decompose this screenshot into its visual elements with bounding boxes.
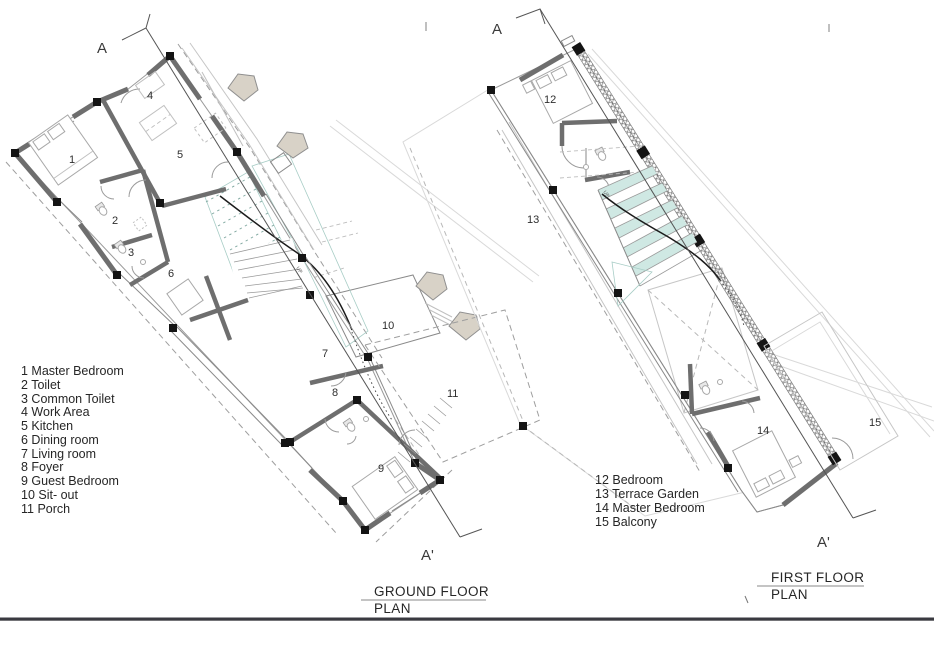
plan-title-line1: GROUND FLOOR bbox=[374, 584, 489, 599]
floor-plans-svg: UP bbox=[0, 0, 934, 657]
room-number-label: 10 bbox=[382, 320, 394, 332]
room-number-label: 7 bbox=[322, 348, 328, 360]
legend-item: 8 Foyer bbox=[21, 460, 63, 474]
legend-item: 14 Master Bedroom bbox=[595, 501, 705, 515]
room-number-label: 15 bbox=[869, 417, 881, 429]
legend-item: 13 Terrace Garden bbox=[595, 487, 699, 501]
room-number-label: 5 bbox=[177, 149, 183, 161]
legend-item: 5 Kitchen bbox=[21, 419, 73, 433]
first-plan-title: FIRST FLOOR PLAN bbox=[745, 570, 864, 603]
section-label-a: A bbox=[97, 40, 107, 57]
room-number-label: 6 bbox=[168, 268, 174, 280]
architectural-drawing-sheet: UP bbox=[0, 0, 934, 657]
room-number-label: 9 bbox=[378, 463, 384, 475]
plan-title-line2: PLAN bbox=[771, 587, 808, 602]
legend-item: 11 Porch bbox=[21, 502, 70, 516]
legend-item: 7 Living room bbox=[21, 447, 96, 461]
legend-item: 10 Sit- out bbox=[21, 488, 79, 502]
legend-item: 1 Master Bedroom bbox=[21, 364, 124, 378]
stray-mark bbox=[745, 596, 748, 603]
legend-item: 3 Common Toilet bbox=[21, 392, 115, 406]
sink-icon bbox=[141, 260, 146, 265]
sink-icon bbox=[718, 380, 723, 385]
room-number-label: 1 bbox=[69, 154, 75, 166]
section-label-a-prime: A' bbox=[421, 547, 434, 564]
ground-plan-title: GROUND FLOOR PLAN bbox=[361, 584, 489, 616]
first-floor-plan: UP A bbox=[403, 9, 934, 551]
legend-item: 2 Toilet bbox=[21, 378, 61, 392]
room-number-label: 11 bbox=[447, 388, 458, 400]
bay-window-icon bbox=[228, 74, 258, 101]
legend-item: 6 Dining room bbox=[21, 433, 99, 447]
room-number-label: 3 bbox=[128, 247, 134, 259]
room-number-label: 12 bbox=[544, 94, 556, 106]
sheet-divider-line bbox=[0, 618, 934, 621]
legend-item: 9 Guest Bedroom bbox=[21, 474, 119, 488]
legend-item: 4 Work Area bbox=[21, 405, 90, 419]
section-label-a: A bbox=[492, 21, 502, 38]
room-number-label: 4 bbox=[147, 90, 153, 102]
ground-legend: 1 Master Bedroom 2 Toilet 3 Common Toile… bbox=[21, 364, 124, 516]
first-legend: 12 Bedroom 13 Terrace Garden 14 Master B… bbox=[595, 473, 705, 529]
plan-title-line1: FIRST FLOOR bbox=[771, 570, 864, 585]
legend-item: 15 Balcony bbox=[595, 515, 658, 529]
legend-item: 12 Bedroom bbox=[595, 473, 663, 487]
bay-window-icon bbox=[416, 272, 447, 300]
window-flag bbox=[561, 36, 574, 47]
first-outer-wall-outline bbox=[491, 48, 837, 512]
planter-box bbox=[270, 153, 291, 174]
room-number-label: 13 bbox=[527, 214, 539, 226]
room-number-label: 14 bbox=[757, 425, 769, 437]
room-number-label: 2 bbox=[112, 215, 118, 227]
room-number-label: 8 bbox=[332, 387, 338, 399]
sink-icon bbox=[364, 417, 369, 422]
plan-title-line2: PLAN bbox=[374, 601, 411, 616]
sink-icon bbox=[584, 165, 589, 170]
section-label-a-prime: A' bbox=[817, 534, 830, 551]
